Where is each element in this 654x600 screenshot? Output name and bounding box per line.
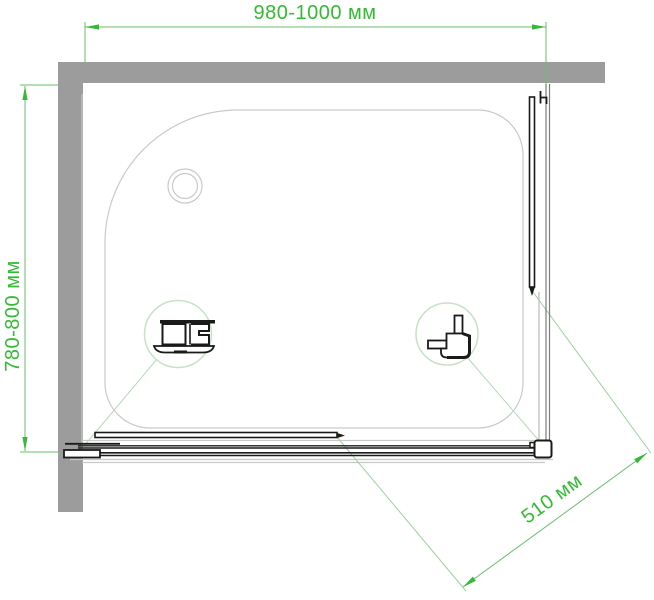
profile-left-box	[163, 324, 186, 345]
arrow-depth-top	[22, 86, 27, 100]
left-wall-bracket-block	[64, 450, 100, 458]
arrow-width-right	[532, 24, 546, 29]
arrow-depth-bottom	[22, 437, 27, 451]
arrow-opening-bottom	[461, 577, 475, 589]
opening-dimension-line	[463, 453, 647, 587]
drain-icon-inner	[173, 174, 198, 199]
bottom-rail-profile-detail-icon	[154, 320, 215, 354]
drawing-svg	[0, 0, 654, 600]
right-sliding-door-panel	[530, 97, 535, 287]
arrow-opening-top	[634, 451, 648, 463]
right-detail-leader	[467, 358, 541, 444]
right-door-motion-arrow-icon	[529, 288, 535, 297]
detail-callouts	[84, 301, 541, 447]
bottom-sliding-door-panel	[95, 433, 337, 438]
opening-extension-b	[533, 292, 651, 453]
wall-top	[58, 62, 605, 83]
profile-base-tab	[174, 351, 187, 354]
technical-drawing-canvas: 980-1000 мм 780-800 мм 510 мм	[0, 0, 654, 600]
corner-block	[535, 441, 552, 458]
corner-profile-left-tab	[428, 341, 447, 349]
drain-icon	[168, 169, 202, 203]
tray-basin-outline	[105, 110, 523, 428]
width-dimension-label: 980-1000 мм	[253, 3, 376, 23]
shower-tray	[70, 94, 553, 463]
arrow-width-left	[85, 24, 99, 29]
profile-top-bar	[160, 320, 215, 324]
frame-profiles	[64, 84, 552, 458]
depth-dimension-label: 780-800 мм	[3, 260, 23, 371]
corner-profile-vertical-tab	[455, 316, 463, 334]
bottom-door-motion-arrow-icon	[337, 433, 346, 439]
profile-s-piece	[191, 324, 209, 345]
